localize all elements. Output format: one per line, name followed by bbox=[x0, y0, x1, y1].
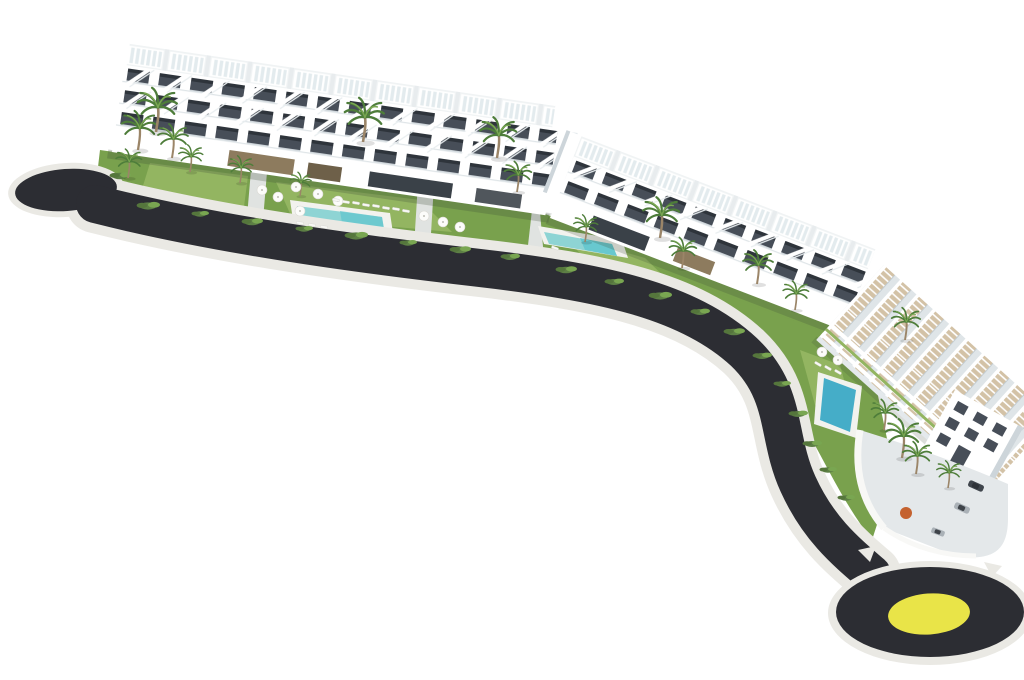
architectural-rendering: Aerial 3D architectural rendering of a w… bbox=[0, 0, 1024, 680]
orange-planter bbox=[900, 507, 912, 519]
render-canvas bbox=[0, 0, 1024, 680]
